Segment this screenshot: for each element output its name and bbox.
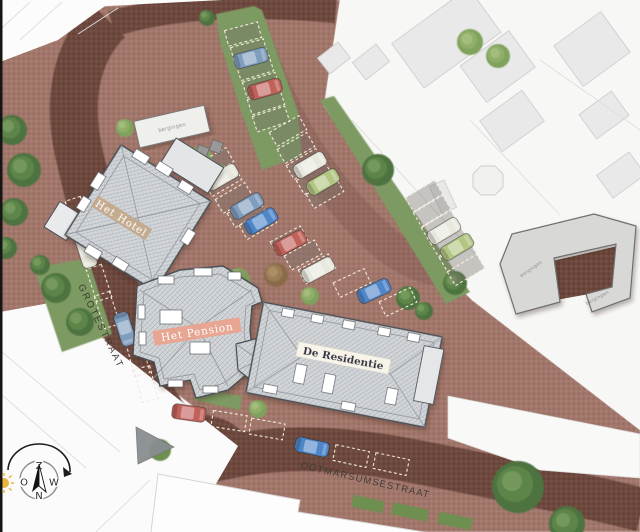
tree-well-octagon xyxy=(473,166,503,195)
compass-letter-o: O xyxy=(20,478,28,489)
tree xyxy=(362,154,394,186)
site-plan: bergingen Het Hotel xyxy=(0,0,640,532)
tree xyxy=(492,461,544,513)
site-plan-canvas: bergingen Het Hotel xyxy=(0,0,640,532)
tree xyxy=(7,153,41,187)
compass-letter-w: W xyxy=(49,478,59,489)
bush xyxy=(116,119,134,137)
bush xyxy=(249,400,267,418)
compass-letter-z: Z xyxy=(36,461,43,472)
compass-letter-n: N xyxy=(35,491,42,502)
tree xyxy=(0,198,28,226)
bush xyxy=(457,29,483,55)
bush xyxy=(486,44,510,68)
tree xyxy=(199,10,215,26)
bush xyxy=(301,287,319,305)
tree xyxy=(41,273,71,303)
scan-edge-artifact xyxy=(0,0,3,532)
tree xyxy=(415,302,433,320)
bush-brown xyxy=(264,263,288,287)
tree xyxy=(30,255,50,275)
